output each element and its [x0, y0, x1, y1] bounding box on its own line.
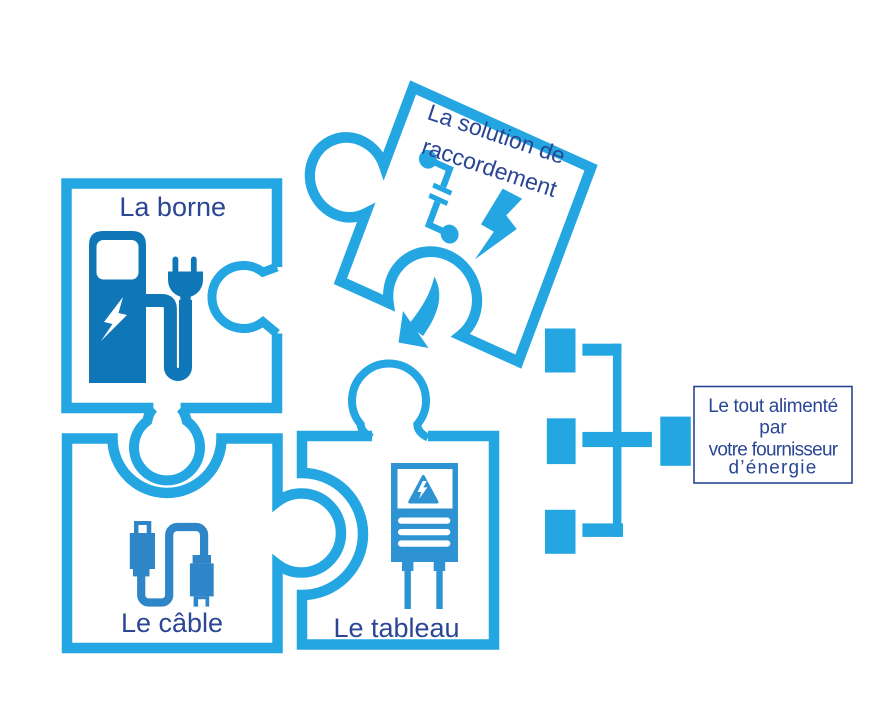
svg-text:La borne: La borne	[119, 192, 226, 222]
svg-text:par: par	[759, 418, 787, 439]
svg-text:Le tableau: Le tableau	[333, 613, 459, 643]
svg-text:Le tout alimenté: Le tout alimenté	[708, 396, 838, 417]
svg-text:d’énergie: d’énergie	[729, 458, 818, 479]
svg-text:Le câble: Le câble	[121, 608, 223, 638]
